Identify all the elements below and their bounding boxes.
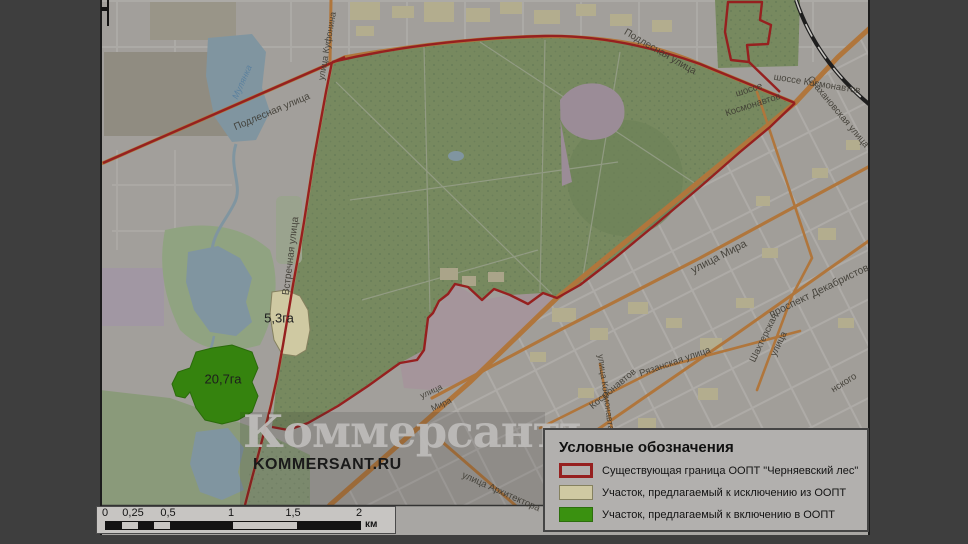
scale-tick: 2 <box>356 507 362 519</box>
inclusion-area-label: 20,7га <box>205 372 242 387</box>
legend-item-exclusion: Участок, предлагаемый к исключению из ОО… <box>559 485 867 500</box>
scale-bar: 0 0,25 0,5 1 1,5 2 км <box>96 506 396 534</box>
legend-title: Условные обозначения <box>559 439 867 456</box>
scale-bar-segments <box>105 521 361 530</box>
scale-tick: 1,5 <box>285 507 300 519</box>
scale-tick: 0,5 <box>160 507 175 519</box>
legend-item-inclusion: Участок, предлагаемый к включению в ООПТ <box>559 507 867 522</box>
legend-box: Условные обозначения Существующая границ… <box>543 428 869 532</box>
legend-item-label: Участок, предлагаемый к включению в ООПТ <box>602 509 835 521</box>
scale-tick: 0,25 <box>122 507 143 519</box>
legend-item-boundary: Существующая граница ООПТ "Черняевский л… <box>559 463 867 478</box>
scale-unit-label: км <box>365 519 377 530</box>
exclusion-area-label: 5,3га <box>264 311 294 326</box>
kommersant-map-figure: Подлесная улица Подлесная улица улица Ку… <box>0 0 968 544</box>
scale-tick: 0 <box>102 507 108 519</box>
inclusion-swatch <box>559 507 593 522</box>
north-mark <box>107 0 109 26</box>
exclusion-swatch <box>559 485 593 500</box>
kommersant-logo: Коммерсантъ <box>243 405 593 458</box>
legend-item-label: Участок, предлагаемый к исключению из ОО… <box>602 487 846 499</box>
kommersant-site-label: KOMMERSANT.RU <box>253 456 402 474</box>
legend-item-label: Существующая граница ООПТ "Черняевский л… <box>602 465 858 477</box>
map-canvas: Подлесная улица Подлесная улица улица Ку… <box>0 0 968 544</box>
scale-tick: 1 <box>228 507 234 519</box>
boundary-swatch <box>559 463 593 478</box>
